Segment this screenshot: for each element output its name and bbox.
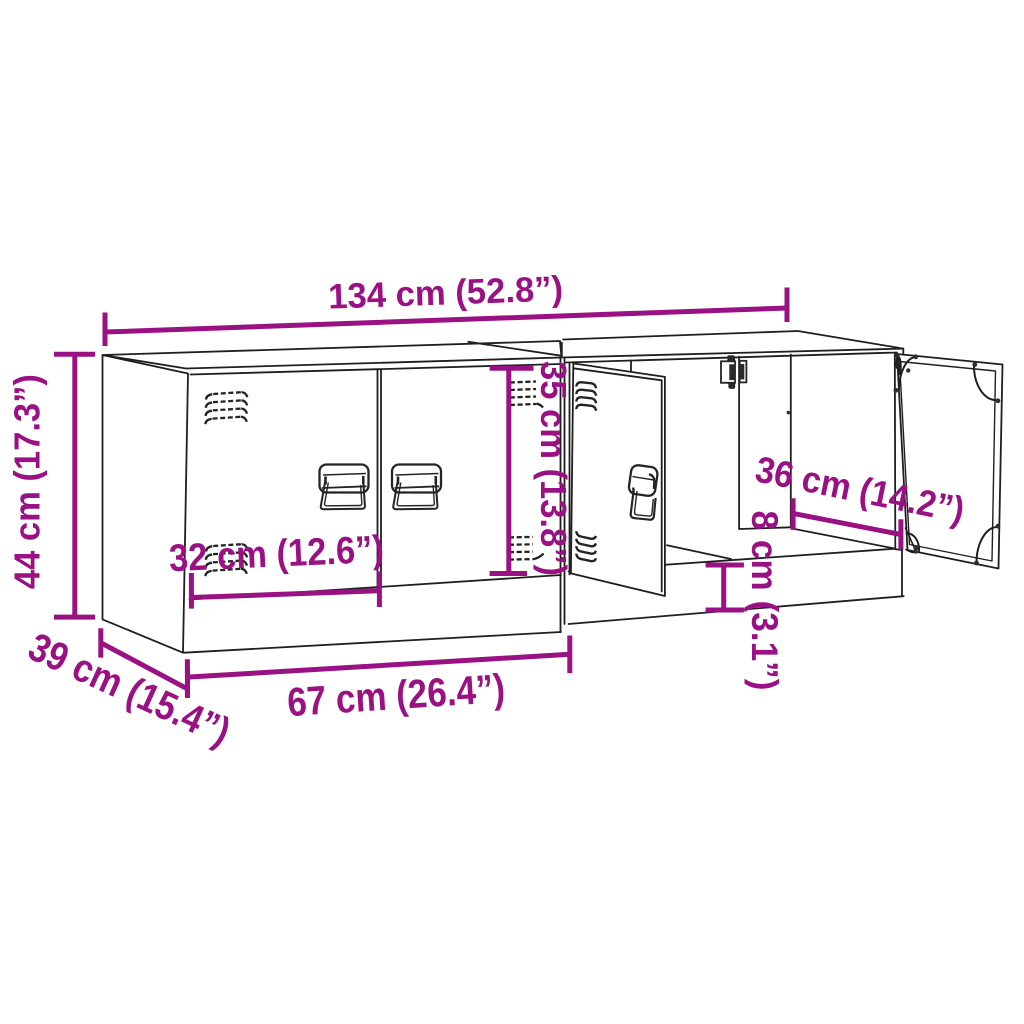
svg-text:35 cm (13.8”): 35 cm (13.8”): [533, 361, 574, 576]
svg-text:134 cm (52.8”): 134 cm (52.8”): [327, 269, 563, 316]
svg-text:8 cm (3.1”): 8 cm (3.1”): [744, 511, 785, 691]
svg-text:44 cm (17.3”): 44 cm (17.3”): [6, 374, 47, 589]
